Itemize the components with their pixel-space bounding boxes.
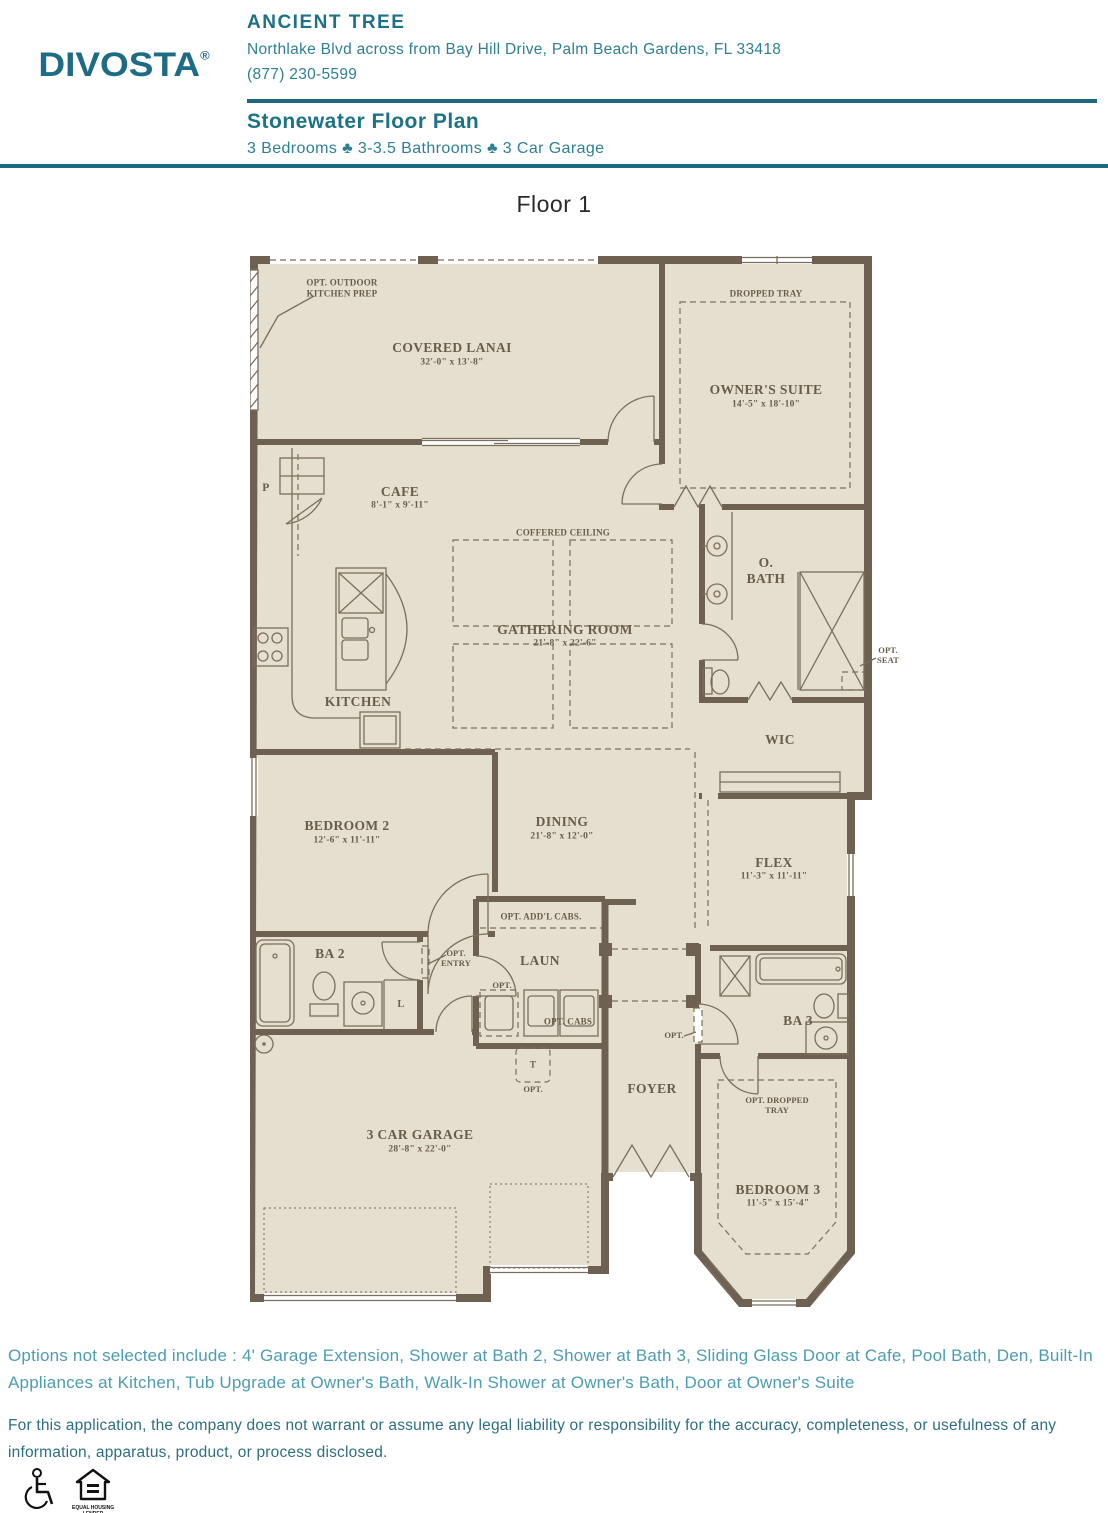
room-label-garage: 3 CAR GARAGE (367, 1127, 474, 1143)
dims-cafe: 8'-1" x 9'-11" (371, 500, 429, 511)
dims-flex: 11'-3" x 11'-11" (741, 871, 808, 882)
annotation-coffered-ceiling: COFFERED CEILING (516, 528, 610, 539)
annotation-opt-outdoor-kitchen: OPT. OUTDOOR KITCHEN PREP (306, 277, 377, 298)
annotation-opt-entry: OPT. ENTRY (441, 948, 471, 968)
dims-bedroom3: 11'-5" x 15'-4" (747, 1198, 810, 1209)
room-label-bath2: BA 2 (315, 946, 345, 962)
divosta-logo: DIVOSTA® (8, 46, 240, 85)
room-label-owners-suite: OWNER'S SUITE (710, 382, 823, 398)
plan-specs: 3 Bedrooms ♣ 3-3.5 Bathrooms ♣ 3 Car Gar… (247, 140, 604, 158)
community-phone: (877) 230-5599 (247, 66, 781, 84)
room-label-covered-lanai: COVERED LANAI (392, 340, 512, 356)
logo-text: DIVOSTA (38, 46, 200, 84)
wheelchair-accessible-icon (22, 1468, 56, 1510)
room-label-flex: FLEX (755, 855, 793, 871)
community-address: Northlake Blvd across from Bay Hill Driv… (247, 41, 781, 59)
annotation-opt-dropped-tray: OPT. DROPPED TRAY (745, 1095, 808, 1115)
annotation-linen: L (397, 999, 404, 1011)
annotation-opt-tankless: OPT. (523, 1084, 542, 1094)
floor-title: Floor 1 (0, 191, 1108, 218)
room-label-owners-bath: O. BATH (747, 555, 786, 587)
annotation-pantry: P (262, 482, 269, 496)
annotation-dropped-tray: DROPPED TRAY (730, 289, 803, 300)
disclaimer: For this application, the company does n… (8, 1412, 1102, 1466)
room-label-foyer: FOYER (627, 1081, 676, 1097)
room-label-gathering-room: GATHERING ROOM (497, 622, 632, 638)
dims-bedroom2: 12'-6" x 11'-11" (313, 835, 380, 846)
annotation-opt-laundry-tub: OPT. (492, 980, 511, 990)
dims-dining: 21'-8" x 12'-0" (530, 831, 593, 842)
registered-mark: ® (200, 48, 210, 62)
floor-plan-drawing (250, 256, 910, 1338)
room-label-bath3: BA 3 (783, 1013, 813, 1029)
floor-plan-page: DIVOSTA® ANCIENT TREE Northlake Blvd acr… (0, 0, 1108, 1513)
room-label-dining: DINING (536, 814, 589, 830)
floor-plan: OPT. OUTDOOR KITCHEN PREP COVERED LANAI … (250, 256, 910, 1338)
dims-owners-suite: 14'-5" x 18'-10" (732, 399, 800, 410)
room-label-wic: WIC (765, 732, 795, 748)
room-label-cafe: CAFE (381, 484, 419, 500)
room-label-kitchen: KITCHEN (325, 694, 392, 710)
room-label-bedroom2: BEDROOM 2 (305, 818, 390, 834)
equal-housing-caption: EQUAL HOUSING LENDER (72, 1505, 114, 1513)
dims-gathering-room: 21'-8" x 22'-6" (533, 638, 596, 649)
annotation-tankless: T (530, 1060, 536, 1071)
room-label-bedroom3: BEDROOM 3 (736, 1182, 821, 1198)
annotation-opt-cabs: OPT. CABS (544, 1017, 592, 1028)
annotation-opt-foyer-door: OPT. (664, 1030, 683, 1040)
dims-covered-lanai: 32'-0" x 13'-8" (420, 357, 483, 368)
community-header: ANCIENT TREE Northlake Blvd across from … (247, 12, 781, 84)
equal-housing-lender-icon: EQUAL HOUSING LENDER (72, 1468, 114, 1513)
annotation-opt-seat: OPT. SEAT (877, 645, 899, 665)
footer-badges: EQUAL HOUSING LENDER (22, 1468, 114, 1513)
dims-garage: 28'-8" x 22'-0" (388, 1144, 451, 1155)
community-name: ANCIENT TREE (247, 12, 781, 34)
options-note: Options not selected include : 4' Garage… (8, 1342, 1102, 1396)
annotation-opt-addl-cabs: OPT. ADD'L CABS. (500, 912, 581, 923)
plan-title: Stonewater Floor Plan (247, 110, 479, 134)
section-divider (0, 164, 1108, 168)
equal-housing-house-icon (75, 1468, 111, 1502)
header-divider (247, 99, 1097, 103)
room-label-laundry: LAUN (520, 953, 560, 969)
